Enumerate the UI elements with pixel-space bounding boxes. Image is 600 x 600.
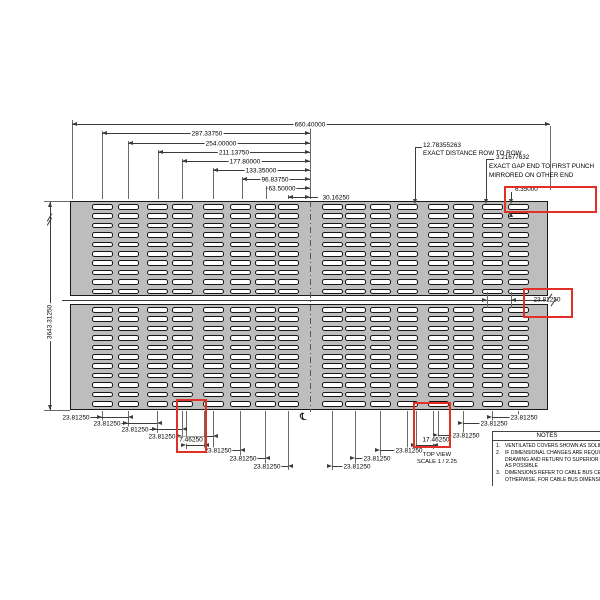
slot [278, 326, 299, 332]
dimension-label: 23.81250 [61, 415, 90, 422]
slot [345, 335, 366, 341]
dimension-label: 23.81250 [203, 448, 232, 455]
slot [370, 363, 391, 369]
slot [453, 204, 474, 210]
slot [147, 289, 168, 295]
slot [278, 289, 299, 295]
dimension-arrow [375, 448, 380, 452]
slot [453, 345, 474, 351]
dimension-arrow [509, 212, 513, 217]
slot [278, 251, 299, 257]
dimension-arrow [484, 199, 488, 204]
slot [118, 232, 139, 238]
slot [255, 392, 276, 398]
slot [255, 382, 276, 388]
dimension-label: 23.81250 [451, 433, 480, 440]
note-number: 3. [496, 470, 505, 477]
slot [397, 242, 418, 248]
slot [482, 354, 503, 360]
dimension-label: 96.83750 [260, 177, 289, 184]
slot [92, 223, 113, 229]
extension-line [265, 411, 266, 470]
dimension-line [44, 201, 70, 202]
dimension-arrow [487, 415, 492, 419]
slot [147, 326, 168, 332]
slot [397, 213, 418, 219]
slot [428, 270, 449, 276]
dimension-arrow [305, 186, 310, 190]
slot [230, 242, 251, 248]
slot [230, 307, 251, 313]
extension-line [128, 411, 129, 427]
slot [147, 392, 168, 398]
slot [428, 307, 449, 313]
slot [147, 307, 168, 313]
dimension-label: 63.50000 [267, 186, 296, 193]
slot [345, 204, 366, 210]
slot [203, 213, 224, 219]
slot [147, 382, 168, 388]
slot [118, 204, 139, 210]
slot [370, 279, 391, 285]
slot [370, 326, 391, 332]
slot [397, 289, 418, 295]
slot [453, 251, 474, 257]
slot [255, 326, 276, 332]
dimension-arrow [433, 443, 438, 447]
slot [482, 382, 503, 388]
slot [508, 363, 529, 369]
slot [203, 307, 224, 313]
slot [203, 345, 224, 351]
slot [508, 382, 529, 388]
slot [508, 326, 529, 332]
slot [147, 251, 168, 257]
note-text: AS POSSIBLE [505, 463, 600, 470]
dimension-label: 23.81250 [92, 421, 121, 428]
slot [147, 204, 168, 210]
slot [278, 204, 299, 210]
slot [172, 354, 193, 360]
slot [397, 232, 418, 238]
slot [345, 213, 366, 219]
extension-line [310, 126, 311, 199]
slot [370, 335, 391, 341]
dimension-arrow [97, 415, 102, 419]
slot [172, 260, 193, 266]
slot [453, 326, 474, 332]
slot [230, 373, 251, 379]
slot [147, 279, 168, 285]
slot [147, 335, 168, 341]
slot [345, 251, 366, 257]
slot [172, 401, 193, 407]
end-gap-note-1: EXACT GAP END TO FIRST PUNCH [489, 163, 594, 171]
slot [482, 204, 503, 210]
slot [255, 251, 276, 257]
slot [370, 373, 391, 379]
slot [172, 307, 193, 313]
slot [278, 242, 299, 248]
slot [255, 204, 276, 210]
slot [482, 232, 503, 238]
slot [453, 363, 474, 369]
slot [172, 345, 193, 351]
slot [278, 354, 299, 360]
slot [428, 232, 449, 238]
panel-top-half [70, 201, 548, 296]
extension-line [128, 141, 129, 199]
dimension-line [44, 410, 70, 411]
slot [255, 279, 276, 285]
slot [508, 232, 529, 238]
dimension-arrow [305, 177, 310, 181]
slot [203, 251, 224, 257]
dimension-label: 23.81250 [252, 464, 281, 471]
extension-line [355, 411, 356, 470]
slot [278, 270, 299, 276]
dimension-label: 254.00000 [205, 141, 238, 148]
dimension-arrow [288, 464, 293, 468]
slot [118, 392, 139, 398]
extension-line [487, 292, 488, 308]
note-row: 2.IF DIMENSIONAL CHANGES ARE REQUIRED PL [496, 450, 600, 457]
notes-title: NOTES [493, 432, 600, 441]
slot [278, 373, 299, 379]
slot [322, 279, 343, 285]
dimension-arrow [458, 421, 463, 425]
slot [453, 213, 474, 219]
slot [230, 326, 251, 332]
slot [453, 223, 474, 229]
slot [118, 289, 139, 295]
drawing-graphics: 660.40000287.33750254.00000211.13750177.… [0, 0, 600, 600]
slot [370, 392, 391, 398]
slot [118, 354, 139, 360]
slot [322, 289, 343, 295]
slot [482, 242, 503, 248]
slot [370, 382, 391, 388]
slot [255, 213, 276, 219]
slot [118, 270, 139, 276]
extension-line [332, 411, 333, 470]
slot [453, 270, 474, 276]
slot [92, 260, 113, 266]
slot [172, 289, 193, 295]
slot [230, 354, 251, 360]
extension-line [240, 411, 241, 462]
note-row: AS POSSIBLE [496, 463, 600, 470]
slot [92, 345, 113, 351]
dimension-arrow [152, 427, 157, 431]
slot [453, 289, 474, 295]
slot [92, 316, 113, 322]
slot [203, 354, 224, 360]
slot [278, 363, 299, 369]
slot [453, 260, 474, 266]
slot [278, 345, 299, 351]
slot [322, 373, 343, 379]
slot [428, 354, 449, 360]
slot [278, 335, 299, 341]
slot [147, 354, 168, 360]
slot [508, 316, 529, 322]
dimension-label: 23.81250 [509, 415, 538, 422]
dimension-arrow [157, 421, 162, 425]
slot [345, 316, 366, 322]
slot [482, 392, 503, 398]
dimension-arrow [72, 122, 77, 126]
slot [118, 326, 139, 332]
slot [482, 345, 503, 351]
slot [397, 345, 418, 351]
slot [92, 204, 113, 210]
dimension-arrow [327, 464, 332, 468]
slot [428, 289, 449, 295]
slot [203, 335, 224, 341]
slot [345, 279, 366, 285]
dimension-line [416, 445, 433, 446]
dimension-arrow [242, 177, 247, 181]
end-gap-value: 3.21677632 [496, 154, 529, 162]
notes-box: NOTES 1.VENTILATED COVERS SHOWN AS SOLID… [492, 431, 600, 486]
slot [508, 401, 529, 407]
slot [118, 307, 139, 313]
slot [203, 289, 224, 295]
slot [508, 392, 529, 398]
slot [428, 279, 449, 285]
slot [482, 289, 503, 295]
slot [453, 232, 474, 238]
slot [345, 354, 366, 360]
slot [118, 316, 139, 322]
dimension-label: 133.35000 [245, 168, 278, 175]
slot [453, 316, 474, 322]
slot [118, 382, 139, 388]
slot [172, 326, 193, 332]
note-number [496, 463, 505, 470]
slot [397, 279, 418, 285]
dimension-arrow [288, 195, 293, 199]
dimension-label: 287.33750 [191, 131, 224, 138]
dimension-line [486, 159, 494, 160]
slot [428, 316, 449, 322]
slot [397, 223, 418, 229]
slot [118, 363, 139, 369]
slot [397, 363, 418, 369]
slot [172, 232, 193, 238]
slot [322, 345, 343, 351]
slot [397, 260, 418, 266]
slot [230, 251, 251, 257]
slot [255, 345, 276, 351]
dimension-arrow [411, 443, 416, 447]
slot [322, 251, 343, 257]
slot [118, 335, 139, 341]
slot [230, 335, 251, 341]
dimension-label: 23.81250 [362, 456, 391, 463]
slot [255, 223, 276, 229]
slot [172, 213, 193, 219]
dimension-arrow [482, 298, 487, 302]
dimension-label: 23.81250 [479, 421, 508, 428]
slot [322, 260, 343, 266]
slot [453, 382, 474, 388]
slot [92, 382, 113, 388]
dimension-arrow [305, 168, 310, 172]
slot [92, 232, 113, 238]
notes-rows: 1.VENTILATED COVERS SHOWN AS SOLID FOR2.… [493, 441, 600, 486]
dimension-line [511, 300, 527, 301]
slot [345, 363, 366, 369]
slot [278, 382, 299, 388]
slot [278, 260, 299, 266]
slot [255, 335, 276, 341]
slot [230, 270, 251, 276]
slot [428, 260, 449, 266]
slot [172, 279, 193, 285]
slot [397, 354, 418, 360]
dimension-line [310, 197, 318, 198]
slot [255, 354, 276, 360]
left-height-dimension-label: 3643.31250 [47, 303, 54, 341]
slot [92, 289, 113, 295]
slot [322, 270, 343, 276]
view-scale: SCALE 1 / 2.25 [405, 459, 469, 466]
slot [255, 307, 276, 313]
slot [508, 354, 529, 360]
slot [255, 373, 276, 379]
dimension-label: 17.46250 [421, 437, 450, 444]
slot [397, 251, 418, 257]
note-row: OTHERWISE, FOR CABLE BUS DIMENSIONS R [496, 477, 600, 484]
slot [278, 307, 299, 313]
slot [508, 335, 529, 341]
slot [345, 307, 366, 313]
note-text: IF DIMENSIONAL CHANGES ARE REQUIRED PL [505, 450, 600, 457]
slot [255, 289, 276, 295]
slot [118, 260, 139, 266]
slot [118, 213, 139, 219]
dimension-arrow [305, 150, 310, 154]
note-row: 1.VENTILATED COVERS SHOWN AS SOLID FOR [496, 443, 600, 450]
note-text: DRAWING AND RETURN TO SUPERIOR TRAY [505, 457, 600, 464]
slot [203, 363, 224, 369]
extension-line [550, 126, 551, 190]
slot [172, 363, 193, 369]
slot [370, 354, 391, 360]
slot [230, 363, 251, 369]
dimension-label: 23.81250 [342, 464, 371, 471]
note-number [496, 477, 505, 484]
slot [453, 242, 474, 248]
dimension-arrow [213, 434, 218, 438]
dimension-label: 30.16250 [321, 195, 350, 202]
view-title: TOP VIEW [405, 452, 469, 459]
slot [397, 204, 418, 210]
slot [370, 270, 391, 276]
slot [482, 401, 503, 407]
slot [147, 373, 168, 379]
extension-line [380, 411, 381, 462]
slot [203, 279, 224, 285]
slot [322, 242, 343, 248]
slot [508, 251, 529, 257]
slot [118, 345, 139, 351]
slot [147, 242, 168, 248]
slot [345, 373, 366, 379]
dimension-arrow [182, 427, 187, 431]
slot [230, 223, 251, 229]
dimension-arrow [128, 141, 133, 145]
slot [322, 401, 343, 407]
slot [482, 270, 503, 276]
slot [203, 326, 224, 332]
slot [92, 307, 113, 313]
dimension-arrow [265, 456, 270, 460]
slot [147, 232, 168, 238]
slot [428, 401, 449, 407]
dimension-arrow [350, 456, 355, 460]
slot [172, 251, 193, 257]
slot [203, 223, 224, 229]
dimension-arrow [305, 131, 310, 135]
slot [453, 354, 474, 360]
slot [397, 382, 418, 388]
panel-bottom-half [70, 304, 548, 410]
slot [508, 242, 529, 248]
seam-gap-dimension-label: 23.81250 [533, 297, 560, 304]
slot [322, 363, 343, 369]
slot [345, 223, 366, 229]
slot [147, 260, 168, 266]
slot [118, 223, 139, 229]
slot [508, 373, 529, 379]
slot [428, 242, 449, 248]
slot [230, 392, 251, 398]
slot [322, 307, 343, 313]
slot [428, 363, 449, 369]
extension-line [486, 159, 487, 200]
slot [278, 316, 299, 322]
slot [92, 251, 113, 257]
slot [203, 242, 224, 248]
slot [230, 260, 251, 266]
slot [147, 345, 168, 351]
slot [230, 401, 251, 407]
slot [322, 223, 343, 229]
slot [172, 392, 193, 398]
slot [203, 270, 224, 276]
slot [508, 204, 529, 210]
slot [345, 326, 366, 332]
slot [203, 316, 224, 322]
extension-line [158, 150, 159, 199]
slot [92, 335, 113, 341]
dimension-arrow [182, 159, 187, 163]
slot [453, 307, 474, 313]
slot [118, 251, 139, 257]
slot [453, 392, 474, 398]
slot [428, 373, 449, 379]
panel-centerline [310, 201, 311, 412]
slot [172, 270, 193, 276]
slot [203, 382, 224, 388]
dimension-label: 177.80000 [229, 159, 262, 166]
dimension-line [102, 417, 128, 418]
slot [278, 232, 299, 238]
slot [322, 382, 343, 388]
